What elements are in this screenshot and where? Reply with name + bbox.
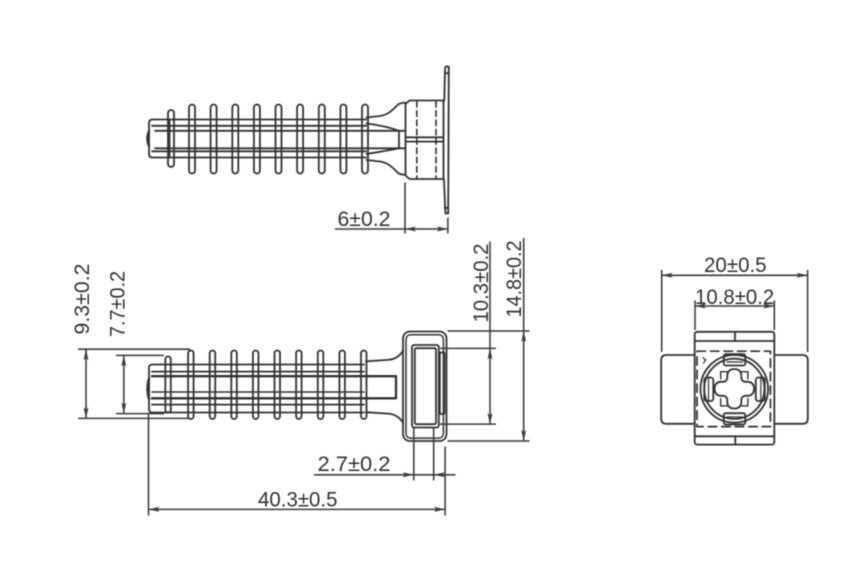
svg-text:2.7±0.2: 2.7±0.2: [318, 452, 391, 476]
svg-text:9.3±0.2: 9.3±0.2: [70, 264, 94, 335]
svg-text:6±0.2: 6±0.2: [338, 207, 391, 231]
svg-text:10.3±0.2: 10.3±0.2: [469, 244, 493, 323]
svg-text:20±0.5: 20±0.5: [704, 253, 767, 277]
svg-text:40.3±0.5: 40.3±0.5: [258, 488, 338, 512]
svg-text:10.8±0.2: 10.8±0.2: [695, 285, 774, 309]
svg-text:7.7±0.2: 7.7±0.2: [106, 271, 130, 337]
svg-text:14.8±0.2: 14.8±0.2: [502, 241, 526, 318]
